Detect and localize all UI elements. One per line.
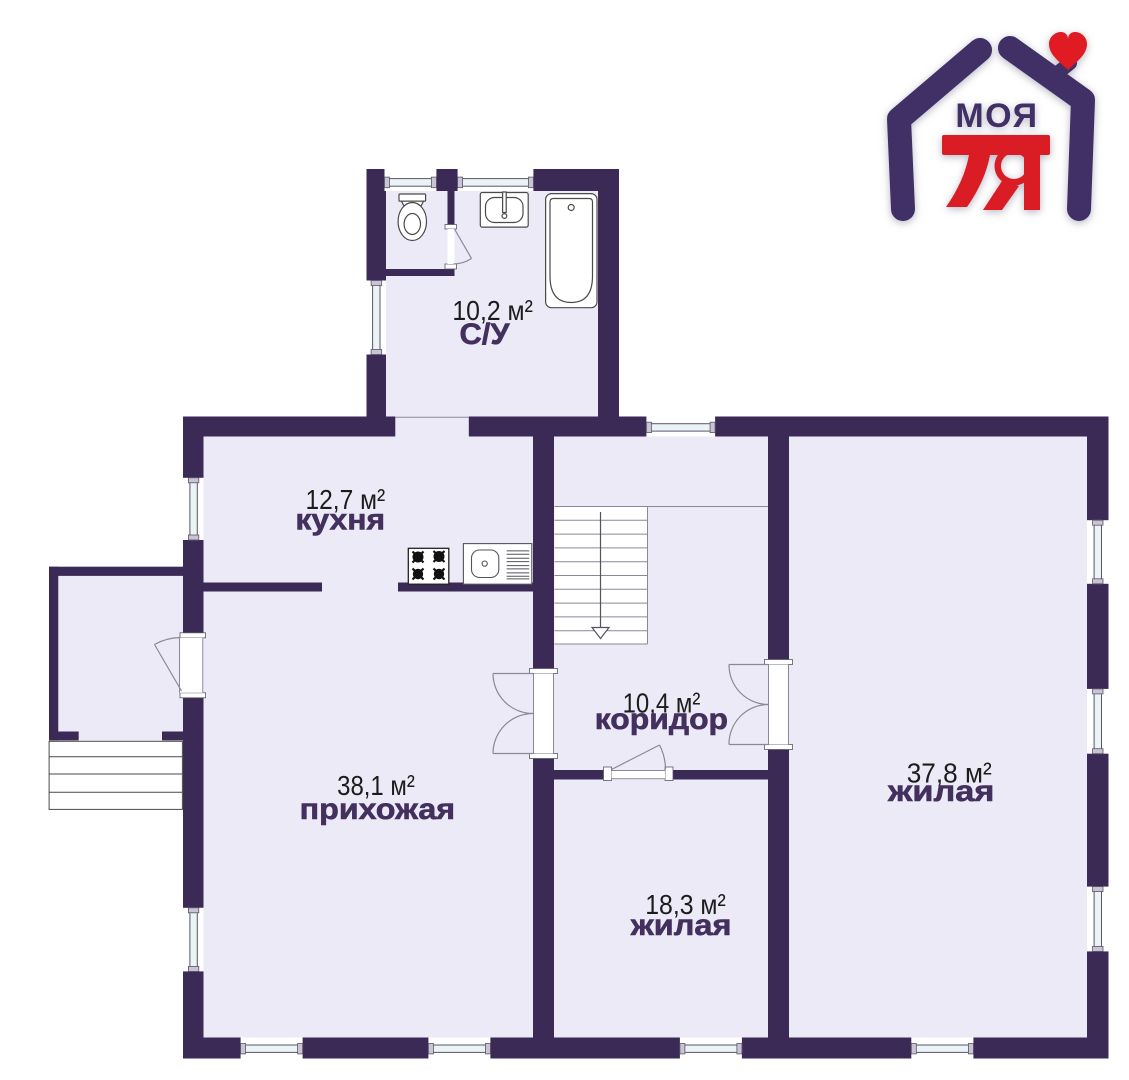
svg-text:С/У: С/У [460, 318, 511, 351]
svg-text:кухня: кухня [295, 504, 385, 537]
svg-text:жилая: жилая [630, 909, 732, 942]
svg-text:коридор: коридор [595, 703, 728, 736]
svg-text:жилая: жилая [887, 775, 994, 808]
svg-text:прихожая: прихожая [300, 793, 455, 826]
svg-text:МОЯ: МОЯ [955, 97, 1038, 135]
